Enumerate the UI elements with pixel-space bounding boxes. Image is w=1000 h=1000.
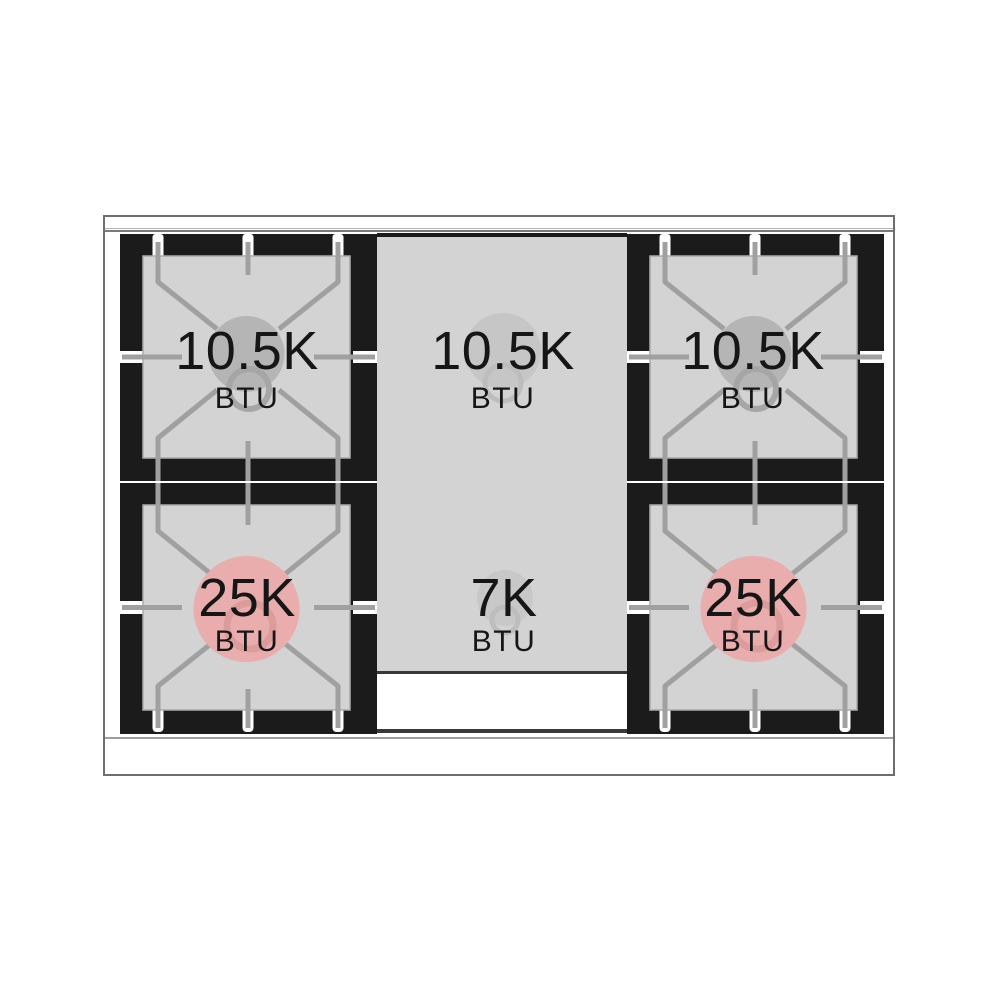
- btu-unit-top-left: BTU: [215, 384, 280, 414]
- btu-value-bottom-center: 7K: [470, 571, 537, 625]
- back-edge-line: [105, 230, 893, 232]
- btu-unit-top-right: BTU: [721, 384, 786, 414]
- btu-value-top-right: 10.5K: [681, 324, 825, 378]
- btu-unit-bottom-center: BTU: [472, 627, 537, 657]
- btu-value-top-left: 10.5K: [175, 324, 319, 378]
- btu-value-bottom-left: 25K: [198, 571, 296, 625]
- btu-value-top-center: 10.5K: [431, 324, 575, 378]
- btu-value-bottom-right: 25K: [704, 571, 802, 625]
- btu-unit-bottom-right: BTU: [721, 627, 786, 657]
- back-edge-highlight: [105, 228, 893, 229]
- center-front-void: [377, 674, 627, 733]
- front-edge-line: [105, 737, 893, 739]
- btu-unit-bottom-left: BTU: [215, 627, 280, 657]
- btu-unit-top-center: BTU: [471, 384, 536, 414]
- cooktop-diagram: 10.5K BTU 10.5K BTU 10.5K BTU 25K BTU 7K…: [0, 0, 1000, 1000]
